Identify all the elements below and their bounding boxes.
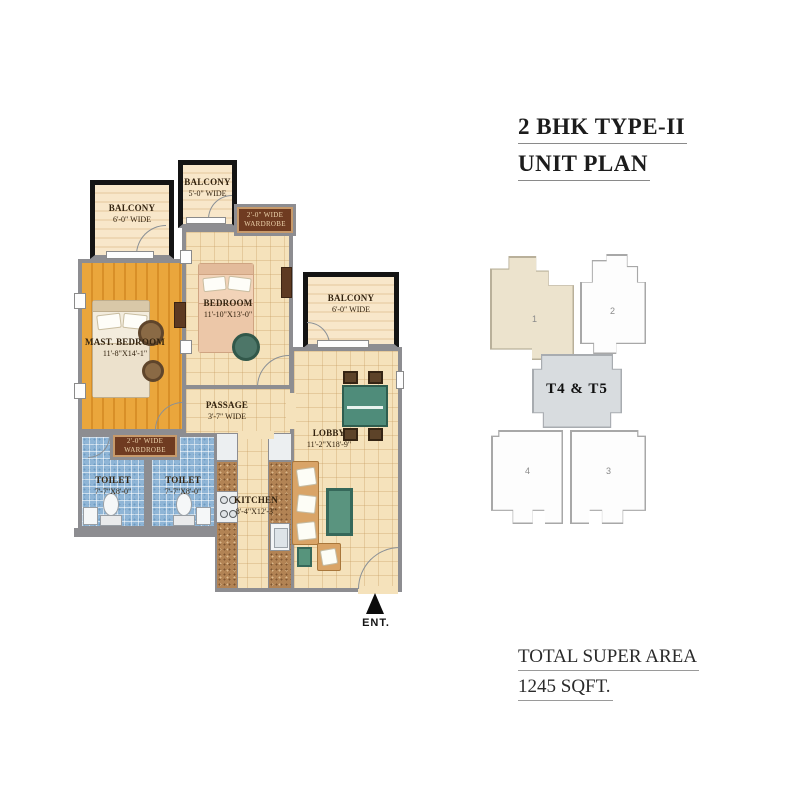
key-plan: 1 2 T4 & T5 4 3 <box>486 250 648 528</box>
balcony-top-left-dims: 6'-0" WIDE <box>90 215 174 225</box>
balcony-top-mid-label: BALCONY 5'-0" WIDE <box>178 177 237 199</box>
dining-chair-4 <box>368 428 383 441</box>
master-bed-headboard <box>93 301 149 312</box>
toilet1-label: TOILET 7'-7"X8'-0" <box>84 475 142 497</box>
stove-burner-1 <box>220 496 228 504</box>
dining-chair-2 <box>368 371 383 384</box>
toilet2-washbasin <box>196 507 211 525</box>
keyplan-unit-1-number: 1 <box>532 314 537 324</box>
passage-dims: 3'-7" WIDE <box>195 412 259 422</box>
kitchen-cabinet-left <box>216 433 238 461</box>
armchair <box>317 543 341 571</box>
center-table <box>326 488 353 536</box>
bedroom-name: BEDROOM <box>188 298 268 310</box>
balcony2-sill-window <box>186 217 226 224</box>
toilet2-dims: 7'-7"X8'-0" <box>154 487 212 497</box>
kitchen-name: KITCHEN <box>234 495 278 507</box>
kitchen-sink-basin <box>274 528 288 548</box>
armchair-cushion <box>320 548 339 567</box>
wardrobe-top-label1: 2'-0" WIDE <box>247 211 283 220</box>
entry-arrow-icon <box>366 593 384 614</box>
bedroom-window-1 <box>180 250 192 264</box>
toilet1-washbasin <box>83 507 98 525</box>
total-area-line1: TOTAL SUPER AREA <box>518 646 699 671</box>
plan-title-line1: 2 BHK TYPE-II <box>518 114 687 144</box>
master-bed-pillow-1 <box>96 313 122 331</box>
bedroom-dresser <box>281 267 292 298</box>
master-window-2 <box>74 383 86 399</box>
kitchen-dims: 8'-4"X12'-3" <box>234 507 278 517</box>
kitchen-label: KITCHEN 8'-4"X12'-3" <box>234 495 278 517</box>
keyplan-unit-4-number: 4 <box>525 466 530 476</box>
passage-label: PASSAGE 3'-7" WIDE <box>195 400 259 422</box>
bedroom-label: BEDROOM 11'-10"X13'-0" <box>188 298 268 320</box>
master-bedroom-label: MAST. BEDROOM 11'-8"X14'-1" <box>80 337 170 359</box>
sofa <box>292 461 319 545</box>
keyplan-core: T4 & T5 <box>532 354 622 428</box>
master-bedroom-dims: 11'-8"X14'-1" <box>80 349 170 359</box>
floor-plan: 2'-0" WIDE WARDROBE 2'-0" WIDE WARDROBE <box>70 155 415 640</box>
sofa-cushion-1 <box>296 467 317 487</box>
keyplan-unit-4-fill <box>493 432 562 523</box>
lobby-name: LOBBY <box>298 428 360 440</box>
balcony-right-name: BALCONY <box>303 293 399 305</box>
passage-name: PASSAGE <box>195 400 259 412</box>
kitchen-sink <box>270 523 290 551</box>
balcony-top-left-name: BALCONY <box>90 203 174 215</box>
sofa-cushion-3 <box>296 521 317 541</box>
keyplan-unit-3: 3 <box>570 430 646 524</box>
toilet2-label: TOILET 7'-7"X8'-0" <box>154 475 212 497</box>
master-window-1 <box>74 293 86 309</box>
sofa-cushion-2 <box>296 494 317 514</box>
master-plant-circle-2 <box>142 360 164 382</box>
wardrobe-top: 2'-0" WIDE WARDROBE <box>237 207 293 233</box>
master-dresser <box>174 302 186 328</box>
kitchen-counter-left <box>216 461 238 589</box>
keyplan-unit-3-fill <box>572 432 645 523</box>
balcony-top-mid-dims: 5'-0" WIDE <box>178 189 237 199</box>
balcony1-sill-window <box>106 251 154 259</box>
master-bedroom-name: MAST. BEDROOM <box>80 337 170 349</box>
balcony-right-dims: 6'-0" WIDE <box>303 305 399 315</box>
kitchen-opening <box>238 431 274 439</box>
wardrobe-mid: 2'-0" WIDE WARDROBE <box>113 435 177 457</box>
dining-chair-1 <box>343 371 358 384</box>
bedroom-bed-pillow-2 <box>227 276 252 293</box>
lobby-label: LOBBY 11'-2"X18'-9" <box>298 428 360 450</box>
side-stool <box>297 547 312 567</box>
keyplan-core-label: T4 & T5 <box>532 381 622 398</box>
toilet1-name: TOILET <box>84 475 142 487</box>
balcony-top-mid-name: BALCONY <box>178 177 237 189</box>
wardrobe-mid-label2: WARDROBE <box>124 446 166 455</box>
lobby-window <box>396 371 404 389</box>
keyplan-unit-2-fill <box>582 256 645 353</box>
bedroom-bed-headboard <box>199 264 253 275</box>
balcony-right-label: BALCONY 6'-0" WIDE <box>303 293 399 315</box>
total-area-block: TOTAL SUPER AREA 1245 SQFT. <box>518 646 699 706</box>
keyplan-unit-1-fill <box>492 258 573 359</box>
plan-title: 2 BHK TYPE-II UNIT PLAN <box>518 114 687 188</box>
wardrobe-top-label2: WARDROBE <box>244 220 286 229</box>
balcony-top-left-label: BALCONY 6'-0" WIDE <box>90 203 174 225</box>
outer-wall-bottom-left <box>74 528 218 537</box>
stove-burner-3 <box>220 510 228 518</box>
wardrobe-mid-label1: 2'-0" WIDE <box>127 437 163 446</box>
lobby-dims: 11'-2"X18'-9" <box>298 440 360 450</box>
bedroom-dims: 11'-10"X13'-0" <box>188 310 268 320</box>
bedroom-window-2 <box>180 340 192 354</box>
bedroom-rug-circle <box>232 333 260 361</box>
total-area-line2: 1245 SQFT. <box>518 676 613 701</box>
plan-title-line2: UNIT PLAN <box>518 151 650 181</box>
bedroom-bed-pillow-1 <box>202 276 226 292</box>
toilet2-wc-tank <box>173 515 195 526</box>
dining-table <box>342 385 388 427</box>
keyplan-unit-2: 2 <box>580 254 646 354</box>
balcony3-sill-window <box>317 340 369 348</box>
keyplan-unit-2-number: 2 <box>610 306 615 316</box>
dining-table-highlight <box>347 406 383 409</box>
keyplan-unit-1: 1 <box>490 256 574 360</box>
entry-label: ENT. <box>354 617 398 629</box>
keyplan-unit-3-number: 3 <box>606 466 611 476</box>
passage-lobby-opening <box>286 393 296 429</box>
keyplan-unit-4: 4 <box>491 430 563 524</box>
toilet1-wc-tank <box>100 515 122 526</box>
toilet2-name: TOILET <box>154 475 212 487</box>
toilet1-dims: 7'-7"X8'-0" <box>84 487 142 497</box>
